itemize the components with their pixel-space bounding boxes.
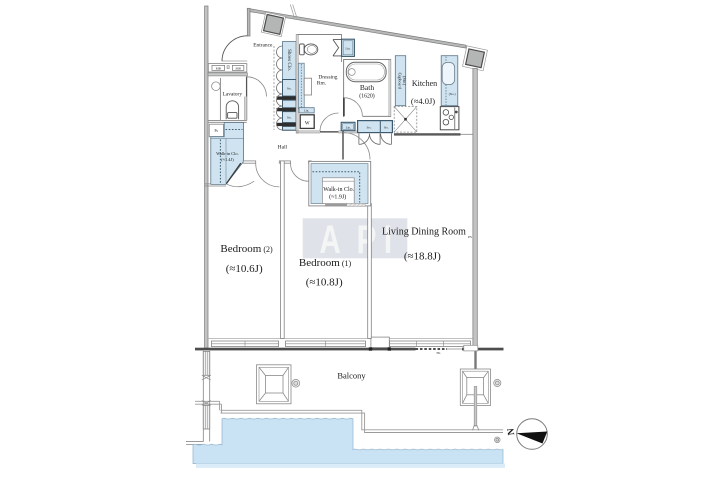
svg-text:Lin.: Lin. <box>346 125 351 129</box>
svg-text:Bedroom (1): Bedroom (1) <box>299 257 352 269</box>
svg-text:MB: MB <box>216 67 222 71</box>
svg-text:I: I <box>384 218 392 262</box>
svg-text:Hall: Hall <box>278 145 288 151</box>
svg-text:P: P <box>357 218 377 262</box>
svg-text:Walk-in Clo.: Walk-in Clo. <box>216 151 239 156</box>
svg-text:(≈4.0J): (≈4.0J) <box>411 96 435 106</box>
svg-text:Bath: Bath <box>360 83 374 92</box>
svg-text:Sto.: Sto. <box>384 125 389 129</box>
svg-text:Sto.: Sto. <box>287 116 292 120</box>
svg-text:Bedroom (2): Bedroom (2) <box>220 243 273 255</box>
svg-text:Living Dining Room: Living Dining Room <box>382 227 466 238</box>
svg-text:(Sto.): (Sto.) <box>402 76 407 86</box>
svg-text:(≈1.4J): (≈1.4J) <box>221 157 234 162</box>
svg-text:A: A <box>319 218 340 262</box>
svg-text:Dressing: Dressing <box>318 74 337 80</box>
svg-text:W: W <box>305 121 310 126</box>
svg-text:Balcony: Balcony <box>337 371 366 381</box>
svg-text:Lavatory: Lavatory <box>223 91 243 97</box>
svg-text:Sto.: Sto. <box>287 87 292 91</box>
svg-text:(≈18.8J): (≈18.8J) <box>404 251 441 263</box>
svg-text:Lin.: Lin. <box>304 109 309 113</box>
svg-text:Rm.: Rm. <box>317 81 326 87</box>
svg-text:Ps: Ps <box>214 129 218 133</box>
svg-text:Kitchen: Kitchen <box>412 79 437 88</box>
svg-text:Lin.: Lin. <box>346 47 351 51</box>
svg-text:Shoes Clo.: Shoes Clo. <box>286 49 291 71</box>
svg-text:FK: FK <box>436 351 441 355</box>
svg-text:(≈10.8J): (≈10.8J) <box>306 277 343 289</box>
svg-text:(≈1.9J): (≈1.9J) <box>329 193 346 200</box>
svg-text:(≈10.6J): (≈10.6J) <box>226 263 263 275</box>
svg-text:Walk-in Clo.: Walk-in Clo. <box>323 187 354 193</box>
svg-text:Sto.: Sto. <box>367 125 372 129</box>
svg-text:MB: MB <box>235 67 241 71</box>
svg-text:Entrance: Entrance <box>253 42 273 48</box>
svg-text:PS: PS <box>468 235 472 239</box>
svg-text:(Sto.): (Sto.) <box>449 92 456 96</box>
svg-text:N: N <box>506 428 517 436</box>
svg-text:(1620): (1620) <box>359 93 375 100</box>
